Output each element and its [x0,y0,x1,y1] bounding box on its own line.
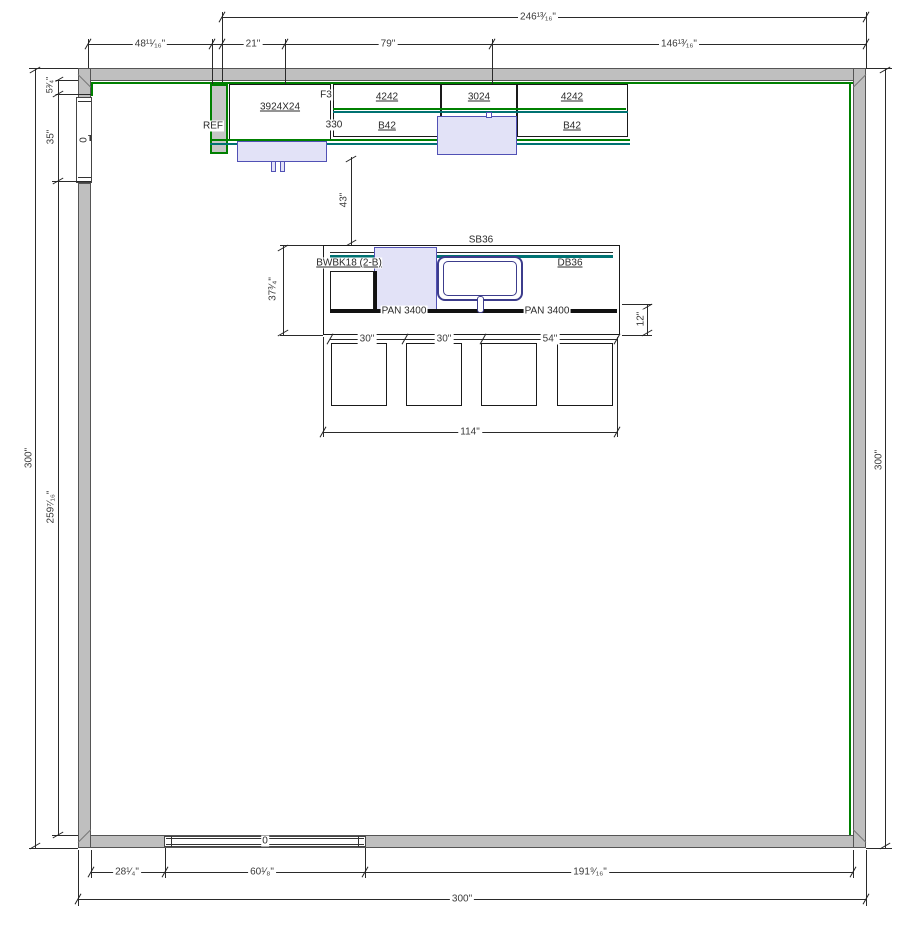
dim-ext [212,39,213,84]
dim-line [351,157,352,245]
faucet [477,296,484,313]
dim-bottom-seg-1: 28¹⁄₄" [113,867,141,878]
sink-base-label: SB36 [468,235,494,246]
panel-right-label: PAN 3400 [524,306,571,317]
window-left-jamb [78,101,91,102]
sink-bowl [443,261,517,296]
wall-cabinet-teal-edge [333,111,628,113]
dim-aisle: 43" [339,191,350,210]
ref-label: REF [202,121,224,132]
dim-ext [853,850,854,878]
dim-line [91,872,853,873]
filler-bottom-label: 330 [325,120,344,131]
range[interactable] [437,116,517,155]
dim-left-seg-3: 259⁷⁄₁₆" [46,489,57,526]
stool[interactable] [557,343,613,406]
dim-top-seg-4: 146¹³⁄₁₆" [659,39,699,50]
dim-ext [222,12,223,82]
dim-line [885,68,886,848]
dim-ext [492,39,493,84]
dim-top-overall: 246¹³⁄₁₆" [518,12,558,23]
dim-line [283,246,284,335]
wall-cabinet-4242-right-label: 4242 [561,92,583,103]
panel-left-label: PAN 3400 [381,306,428,317]
window-left-jamb [78,177,91,178]
dim-island-seg-3: 54" [541,334,560,345]
dim-left-outer: 300" [24,446,35,470]
dim-top-seg-2: 21" [244,39,263,50]
counter-line-left-stub [91,82,93,96]
stool[interactable] [481,343,537,406]
dim-bottom-overall: 300" [450,894,474,905]
floor-plan: 0 0 REF 3924X24 F3 330 4242 3024 4242 B4… [0,0,917,925]
dim-island-overhang: 12" [636,310,647,329]
dim-ext [323,337,324,437]
dim-line [58,80,59,835]
dim-bottom-seg-3: 191⁹⁄₁₆" [571,867,609,878]
base-cabinet-b42-right-label: B42 [563,121,581,132]
dim-island-seg-1: 30" [358,334,377,345]
dim-ext [622,335,652,336]
refrigerator-handle [280,161,285,172]
stool[interactable] [331,343,387,406]
window-bottom-jamb [358,836,359,847]
window-bottom-tag: 0 [261,836,269,847]
wall-cabinet-3024-label: 3024 [468,92,490,103]
dim-ext [29,848,78,849]
dim-island-overall: 114" [458,427,482,438]
counter-line-right [849,82,851,835]
dim-left-seg-2: 35" [46,128,57,147]
dim-ext [165,848,166,878]
window-bottom-jamb [171,836,172,847]
dim-line [35,68,36,848]
dim-ext [280,335,323,336]
wall-left-lower[interactable] [78,183,91,848]
wall-top[interactable] [78,68,866,81]
dim-ext [365,848,366,878]
refrigerator-handle [271,161,276,172]
dim-right-outer: 300" [874,448,885,472]
wall-cabinet-green-edge [333,108,626,110]
dim-top-seg-3: 79" [379,39,398,50]
dim-island-depth: 37³⁄₄" [268,275,279,303]
filler-top-label: F3 [319,90,333,101]
stool[interactable] [406,343,462,406]
wall-cabinet-4242-left-label: 4242 [376,92,398,103]
dim-island-seg-2: 30" [435,334,454,345]
dim-line [88,44,866,45]
wall-right[interactable] [853,68,866,848]
dishwasher[interactable] [374,247,437,311]
range-handle [486,112,492,118]
refrigerator[interactable] [237,141,327,162]
island-bar-panel[interactable] [330,309,617,313]
island-bwbk18-cabinet[interactable] [330,271,374,311]
base-cabinet-b42-left-label: B42 [378,121,396,132]
dim-left-seg-1: 5³⁄₄" [45,75,56,95]
dim-ext [617,337,618,437]
dim-top-seg-1: 48¹¹⁄₁₆" [133,39,167,50]
dim-bottom-seg-2: 60¹⁄₈" [248,867,276,878]
dim-ext [91,850,92,878]
window-left-tag: 0 [79,136,90,144]
island-counter-line [330,252,613,253]
island-partition [374,271,377,311]
island-db36-label: DB36 [557,258,582,269]
cabinet-3924x24[interactable] [229,84,331,141]
island-bwbk18-label: BWBK18 (2-B) [316,258,382,269]
cabinet-3924x24-label: 3924X24 [260,102,300,113]
dim-ext [285,39,286,84]
